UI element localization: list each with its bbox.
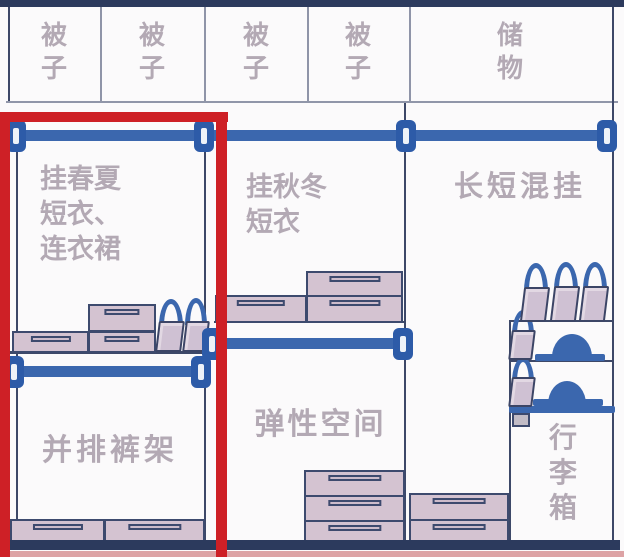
right-hang-zone-label: 长短混挂 (440, 168, 600, 204)
hanging-rod (8, 130, 613, 141)
quilt-cell-label: 被 子 (216, 20, 296, 85)
storage-box (306, 295, 403, 323)
cabinet-right-edge (612, 7, 614, 541)
top-shelf-divider (307, 7, 309, 101)
handbag-icon (508, 377, 536, 407)
storage-box (12, 331, 89, 353)
storage-box (306, 271, 403, 297)
highlight-rectangle-right (216, 112, 227, 557)
handbag-icon (155, 321, 185, 352)
highlight-rectangle-top (0, 112, 228, 122)
luggage-zone-label: 行 李 箱 (540, 420, 586, 525)
hat-brim-icon (535, 354, 605, 361)
top-shelf-divider (100, 7, 102, 101)
storage-cell-label: 储 物 (430, 20, 590, 85)
hanging-rod (214, 338, 406, 349)
small-box (512, 413, 530, 427)
rod-bracket-icon (191, 356, 211, 388)
quilt-cell-label: 被 子 (318, 20, 398, 85)
drawer (304, 470, 405, 497)
rod-bracket-icon (396, 120, 416, 152)
quilt-cell-label: 被 子 (14, 20, 94, 85)
cabinet-top-edge (0, 0, 624, 7)
top-shelf-left-edge (8, 7, 10, 101)
quilt-cell-label: 被 子 (112, 20, 192, 85)
wardrobe-organization-diagram: 被 子 被 子 被 子 被 子 储 物 挂春夏 短衣、 连衣裙 并排裤架 挂秋冬… (0, 0, 624, 557)
middle-hang-zone-label: 挂秋冬 短衣 (246, 170, 396, 240)
top-shelf-divider (409, 7, 411, 101)
hat-brim-icon (533, 399, 603, 406)
handbag-icon (579, 286, 609, 322)
rod-bracket-icon (393, 328, 413, 360)
flex-space-zone-label: 弹性空间 (238, 406, 403, 444)
top-shelf-bottom-line (6, 101, 618, 103)
highlight-rectangle-left (0, 112, 10, 557)
storage-box (215, 295, 307, 323)
pants-rack-zone-label: 并排裤架 (25, 432, 195, 470)
drawer (304, 495, 405, 522)
rod-bracket-icon (597, 120, 617, 152)
accessory-unit-bottom-shelf (509, 406, 615, 413)
hanging-rod (10, 366, 208, 377)
storage-box (88, 331, 156, 353)
storage-box (88, 304, 156, 332)
handbag-icon (508, 330, 536, 360)
handbag-icon (550, 286, 580, 322)
cabinet-bottom-edge (4, 540, 620, 550)
rod-bracket-icon (194, 120, 214, 152)
top-shelf-divider (204, 7, 206, 101)
floor-line (0, 551, 624, 557)
drawer (409, 493, 509, 521)
handbag-icon (520, 287, 550, 322)
left-hang-zone-label: 挂春夏 短衣、 连衣裙 (40, 162, 195, 267)
